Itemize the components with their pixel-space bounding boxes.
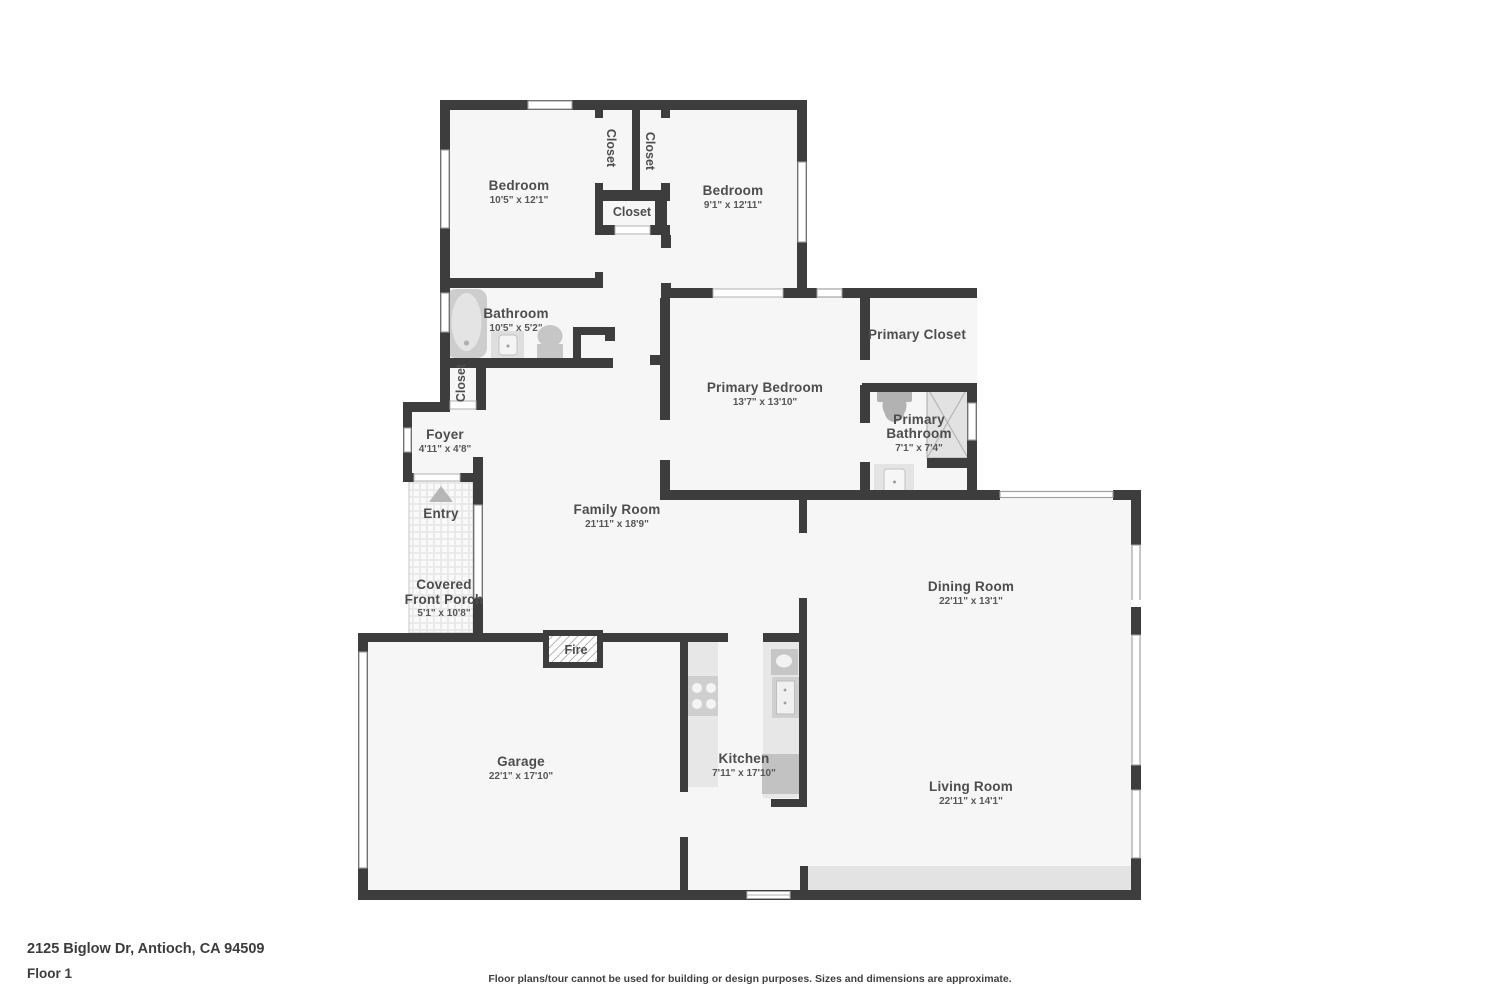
sink-drain xyxy=(507,345,510,348)
floor-plan: Bedroom 10'5" x 12'1" Closet Closet Clos… xyxy=(0,0,1500,1000)
stove-burner xyxy=(706,683,716,693)
wall-segment xyxy=(403,473,414,482)
stove-burner xyxy=(692,699,702,709)
window xyxy=(1000,492,1113,498)
dishwasher-knob xyxy=(784,689,787,692)
window xyxy=(441,293,449,332)
window xyxy=(528,101,572,109)
wall-segment xyxy=(660,490,1000,500)
room-label-primary-closet: Primary Closet xyxy=(868,327,966,342)
wall-segment xyxy=(573,335,581,368)
wall-segment xyxy=(799,642,807,807)
wall-segment xyxy=(1131,765,1141,790)
window xyxy=(404,428,411,452)
wall-segment xyxy=(783,288,817,298)
wall-segment xyxy=(655,201,667,225)
floor-area xyxy=(358,633,807,900)
room-dims-foyer: 4'11" x 4'8" xyxy=(419,444,472,455)
room-label-living-room: Living Room xyxy=(929,779,1013,794)
wall-segment xyxy=(660,298,670,420)
wall-segment xyxy=(799,498,807,533)
room-label-bathroom: Bathroom xyxy=(483,306,548,321)
room-dims-porch: 5'1" x 10'8" xyxy=(417,608,470,619)
dishwasher-knob xyxy=(784,702,787,705)
wall-segment xyxy=(927,458,977,468)
wall-segment xyxy=(600,633,728,642)
room-dims-living-room: 22'11" x 14'1" xyxy=(939,796,1003,807)
stove-burner xyxy=(706,699,716,709)
wall-segment xyxy=(595,190,670,201)
room-dims-primary-bedroom: 13'7" x 13'10" xyxy=(733,397,798,408)
wall-segment xyxy=(595,225,615,235)
window xyxy=(1132,635,1140,765)
wall-segment xyxy=(763,633,807,642)
room-label-fireplace: Fire xyxy=(565,643,588,657)
room-label-porch-line1: Covered xyxy=(416,577,471,592)
window xyxy=(359,652,367,868)
stove-burner xyxy=(692,683,702,693)
wall-segment xyxy=(860,462,870,500)
room-dims-dining-room: 22'11" x 13'1" xyxy=(939,596,1003,607)
room-label-bedroom-right: Bedroom xyxy=(703,183,764,198)
window xyxy=(474,505,482,598)
room-dims-family-room: 21'11" x 18'9" xyxy=(585,519,649,530)
wall-segment xyxy=(862,383,977,392)
disclaimer-text: Floor plans/tour cannot be used for buil… xyxy=(0,973,1500,985)
room-label-primary-bath-line1: Primary xyxy=(893,412,945,427)
room-label-family-room: Family Room xyxy=(574,502,661,517)
toilet-tank xyxy=(537,344,563,358)
window xyxy=(1132,545,1140,602)
door-opening xyxy=(713,289,783,297)
wall-segment xyxy=(842,288,977,298)
wall-segment xyxy=(650,225,670,235)
window xyxy=(1132,790,1140,858)
room-label-garage: Garage xyxy=(497,754,545,769)
wall-segment xyxy=(476,360,486,410)
front-door xyxy=(414,474,460,481)
room-dims-kitchen: 7'11" x 17'10" xyxy=(712,768,776,779)
floor-plan-page: Bedroom 10'5" x 12'1" Closet Closet Clos… xyxy=(0,0,1500,1000)
room-dims-bedroom-right: 9'1" x 12'11" xyxy=(704,200,762,211)
room-label-closet-1: Closet xyxy=(604,129,618,168)
room-dims-bedroom-left: 10'5" x 12'1" xyxy=(490,195,549,206)
room-label-primary-bedroom: Primary Bedroom xyxy=(707,380,823,395)
room-label-closet-hall: Closet xyxy=(613,205,652,219)
window xyxy=(441,150,449,228)
floor-area xyxy=(807,490,1141,900)
wall-segment xyxy=(1113,490,1141,500)
wall-segment xyxy=(595,110,603,118)
bathtub-drain xyxy=(464,340,469,345)
room-label-bedroom-left: Bedroom xyxy=(489,178,550,193)
door-opening xyxy=(615,226,650,234)
window xyxy=(817,289,842,297)
hearth-strip xyxy=(808,866,1131,892)
wall-segment xyxy=(663,288,713,298)
kitchen-sink-basin xyxy=(776,655,792,668)
room-label-entry: Entry xyxy=(423,506,459,521)
window-mullion xyxy=(1131,600,1141,607)
wall-segment xyxy=(605,327,615,341)
room-label-closet-2: Closet xyxy=(643,132,657,171)
room-label-primary-bath-line2: Bathroom xyxy=(886,426,951,441)
room-label-kitchen: Kitchen xyxy=(719,751,770,766)
wall-segment xyxy=(440,278,603,288)
wall-segment xyxy=(967,383,977,500)
address-text: 2125 Biglow Dr, Antioch, CA 94509 xyxy=(27,941,264,957)
vanity-drain xyxy=(893,481,896,484)
window xyxy=(798,162,806,242)
wall-segment xyxy=(661,110,670,118)
room-label-dining-room: Dining Room xyxy=(928,579,1014,594)
room-label-closet-foyer: Closet xyxy=(454,363,468,402)
stove-icon xyxy=(686,676,718,716)
wall-segment xyxy=(632,110,640,192)
room-dims-primary-bath: 7'1" x 7'4" xyxy=(895,443,943,454)
wall-segment xyxy=(440,100,807,110)
window xyxy=(968,403,976,440)
wall-segment xyxy=(650,355,660,365)
wall-segment xyxy=(403,402,450,412)
wall-segment xyxy=(1131,500,1141,545)
dishwasher-door xyxy=(777,681,795,714)
wall-segment xyxy=(358,633,548,642)
wall-segment xyxy=(680,642,688,792)
room-dims-bathroom: 10'5" x 5'2" xyxy=(489,323,542,334)
wall-segment xyxy=(800,866,808,890)
room-label-porch-line2: Front Porch xyxy=(405,592,484,607)
room-label-foyer: Foyer xyxy=(426,427,464,442)
room-dims-garage: 22'1" x 17'10" xyxy=(489,771,554,782)
wall-segment xyxy=(771,799,807,807)
wall-segment xyxy=(661,235,671,248)
wall-segment xyxy=(680,837,688,890)
floor-area xyxy=(403,402,483,482)
